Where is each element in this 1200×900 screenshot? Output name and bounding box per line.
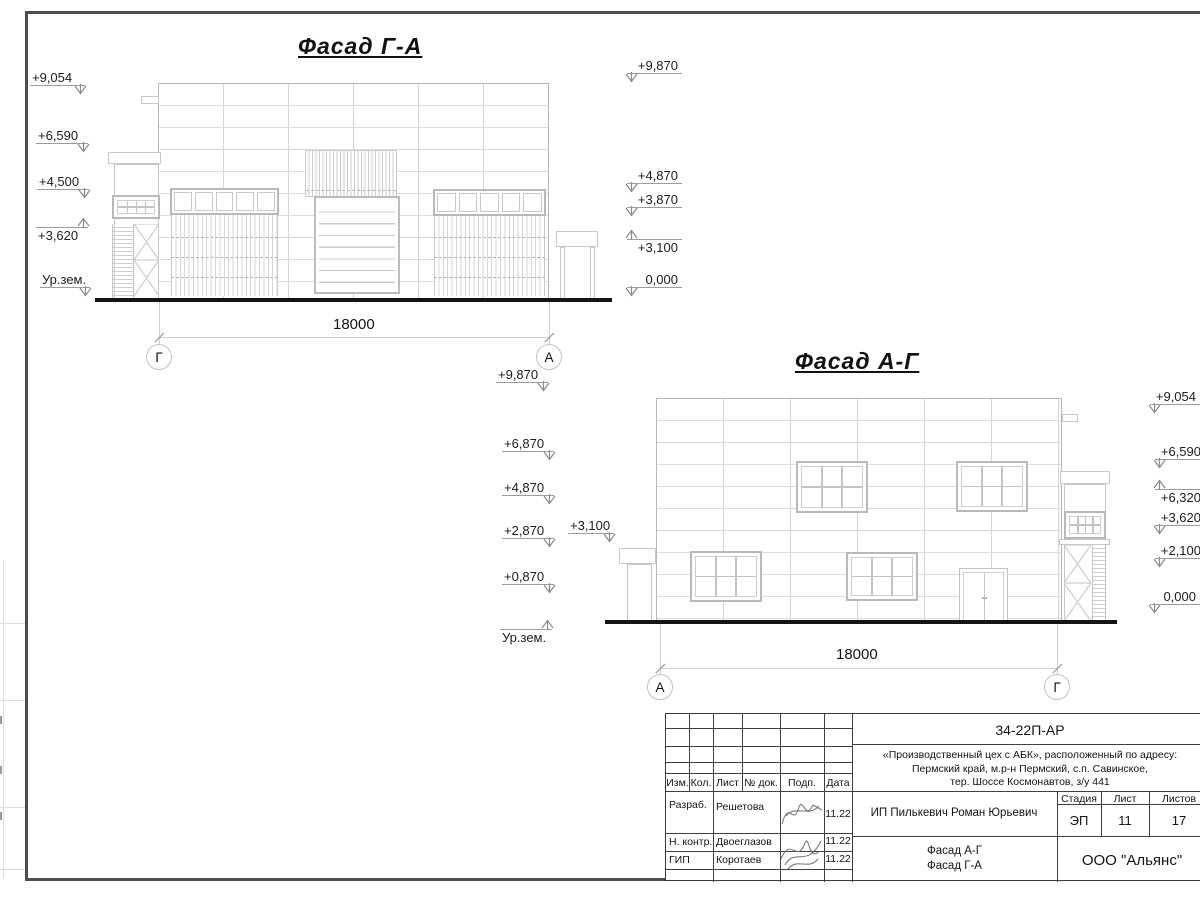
drawing-sheet: { "sheet": { "doc_number": "34-22П-АР", … [0,0,1200,900]
signature-date: 11.22 [825,853,851,865]
grid-window [956,461,1028,512]
frame-left-border [25,11,28,880]
dimension-label: 18000 [333,316,375,333]
dimension-line [159,337,549,338]
drawing-content-title: Фасад А-ГФасад Г-А [852,844,1057,874]
elevation-mark: +3,870 [627,192,682,208]
elevation-mark: +6,590 [1155,444,1200,460]
elevation-mark-label: +3,100 [627,239,682,255]
content-title-line: Фасад А-Г [852,844,1057,859]
margin-mark [0,766,2,774]
elevation-mark: 0,000 [627,272,682,288]
window-pane [459,193,478,212]
elevation-mark: +2,870 [502,523,554,539]
facade-ga-parapet-tab [141,96,159,104]
project-address-line: тер. Шоссе Космонавтов, з/у 441 [852,776,1200,790]
margin-line [0,807,25,808]
stamp-header-cell: Лист [716,777,739,789]
facade-ag-tower-roof [1060,471,1110,484]
window-pane [195,192,213,211]
sheet-value: 11 [1118,813,1132,828]
window-pane [523,193,542,212]
window-pane [437,193,456,212]
elevation-mark: +3,100 [568,518,614,534]
siding-joint-dashed [434,237,545,238]
project-address: «Производственный цех с АБК», расположен… [852,749,1200,790]
axis-bubble-g: Г [146,344,172,370]
margin-mark [0,812,2,820]
signature-role: ГИП [669,854,690,866]
axis-bubble-g2: Г [1044,674,1070,700]
stage-label: Стадия [1061,793,1097,805]
facade-ga-ground-line [95,298,612,302]
elevation-mark-label: +6,320 [1155,489,1200,505]
elevation-mark: +6,870 [502,436,554,452]
siding-joint-dashed [171,257,278,258]
signature-name: Двоеглазов [716,836,772,848]
elevation-mark: 0,000 [1150,589,1200,605]
elevation-mark: +2,100 [1155,543,1200,559]
project-address-line: «Производственный цех с АБК», расположен… [852,749,1200,763]
organization-name: ООО "Альянс" [1082,852,1182,869]
elevation-mark: +4,500 [37,174,89,190]
facade-ga-siding-left [171,215,278,296]
tower-window-band [1064,511,1106,539]
elevation-mark: +4,870 [502,480,554,496]
grid-window [846,552,918,601]
margin-line [0,700,25,701]
title-block: 34-22П-АР «Производственный цех с АБК», … [665,713,1200,881]
facade-ag-title: Фасад А-Г [795,348,919,375]
signature-name: Решетова [716,801,764,813]
signature-role: Разраб. [669,799,707,811]
elevation-mark: Ур.зем. [500,617,552,645]
frame-top-border [25,11,1200,14]
signature-gip [778,833,828,873]
elevation-mark: +6,320 [1155,477,1200,505]
margin-mark [0,716,2,724]
facade-ga-tower-roof [108,152,161,164]
cross-bracing [134,224,159,296]
facade-ga-porch-roof [556,231,598,247]
siding-joint-dashed [171,237,278,238]
elevation-mark: +0,870 [502,569,554,585]
facade-ag-ground-line [605,620,1117,624]
siding-joint-dashed [171,277,278,278]
axis-bubble-a2: А [647,674,673,700]
sheets-total-value: 17 [1172,813,1186,828]
siding-joint-dashed [306,190,396,191]
tower-window-band [112,195,160,219]
facade-ga-title: Фасад Г-А [298,33,422,60]
elevation-mark-label: Ур.зем. [500,629,552,645]
margin-line [0,869,25,870]
elevation-mark: +9,870 [627,58,682,74]
elevation-mark: +4,870 [627,168,682,184]
margin-line [0,623,25,624]
signature-date: 11.22 [825,835,851,847]
facade-ag-stair-ladder [1092,545,1106,621]
siding-joint-dashed [434,257,545,258]
window-pane [174,192,192,211]
grid-window [690,551,762,602]
signature-name: Коротаев [716,854,761,866]
grid-window [796,461,868,513]
elevation-mark: +3,100 [627,227,682,255]
elevation-mark: +3,620 [1155,510,1200,526]
sheet-label: Лист [1114,793,1137,805]
facade-ga-stair-ladder [112,224,134,298]
project-address-line: Пермский край, м.р-н Пермский, с.п. Сави… [852,763,1200,777]
window-band [433,189,546,216]
window-pane [480,193,499,212]
elevation-mark: Ур.зем. [40,272,90,288]
content-title-line: Фасад Г-А [852,859,1057,874]
stamp-header-cell: Дата [826,777,849,789]
stamp-header-cell: № док. [744,777,778,789]
facade-ga-porch-post [560,247,565,299]
elevation-mark: +9,054 [1150,389,1200,405]
sheets-total-label: Листов [1162,793,1196,805]
facade-ga-porch-post [590,247,595,299]
elevation-mark: +3,620 [36,215,88,243]
facade-ag-entrance-door [959,568,1008,622]
dimension-label: 18000 [836,646,878,663]
cross-bracing [1064,545,1091,621]
facade-ag-parapet-tab [1062,414,1078,422]
margin-line [3,560,4,878]
document-number: 34-22П-АР [995,722,1064,738]
stamp-header-cell: Изм. [666,777,689,789]
signature-date: 11.22 [825,808,851,820]
signature-role: Н. контр. [669,836,712,848]
siding-joint-dashed [434,277,545,278]
window-pane [257,192,275,211]
elevation-mark: +6,590 [36,128,88,144]
elevation-mark-label: +3,620 [36,227,88,243]
facade-ga-siding-right [434,216,545,296]
elevation-mark: +9,870 [496,367,548,383]
window-pane [236,192,254,211]
facade-ag-canopy-post [627,564,652,621]
stamp-header-cell: Подп. [788,777,816,789]
stage-value: ЭП [1070,813,1089,828]
facade-ag-canopy-roof [619,548,656,564]
stamp-header-cell: Кол. [691,777,712,789]
axis-bubble-a: А [536,344,562,370]
facade-ga-sectional-door [314,196,400,294]
window-pane [502,193,521,212]
elevation-mark: +9,054 [30,70,85,86]
window-band [170,188,279,215]
signature-razrab [778,794,826,832]
dimension-line [660,668,1057,669]
window-pane [216,192,234,211]
client-name: ИП Пилькевич Роман Юрьевич [871,807,1038,819]
